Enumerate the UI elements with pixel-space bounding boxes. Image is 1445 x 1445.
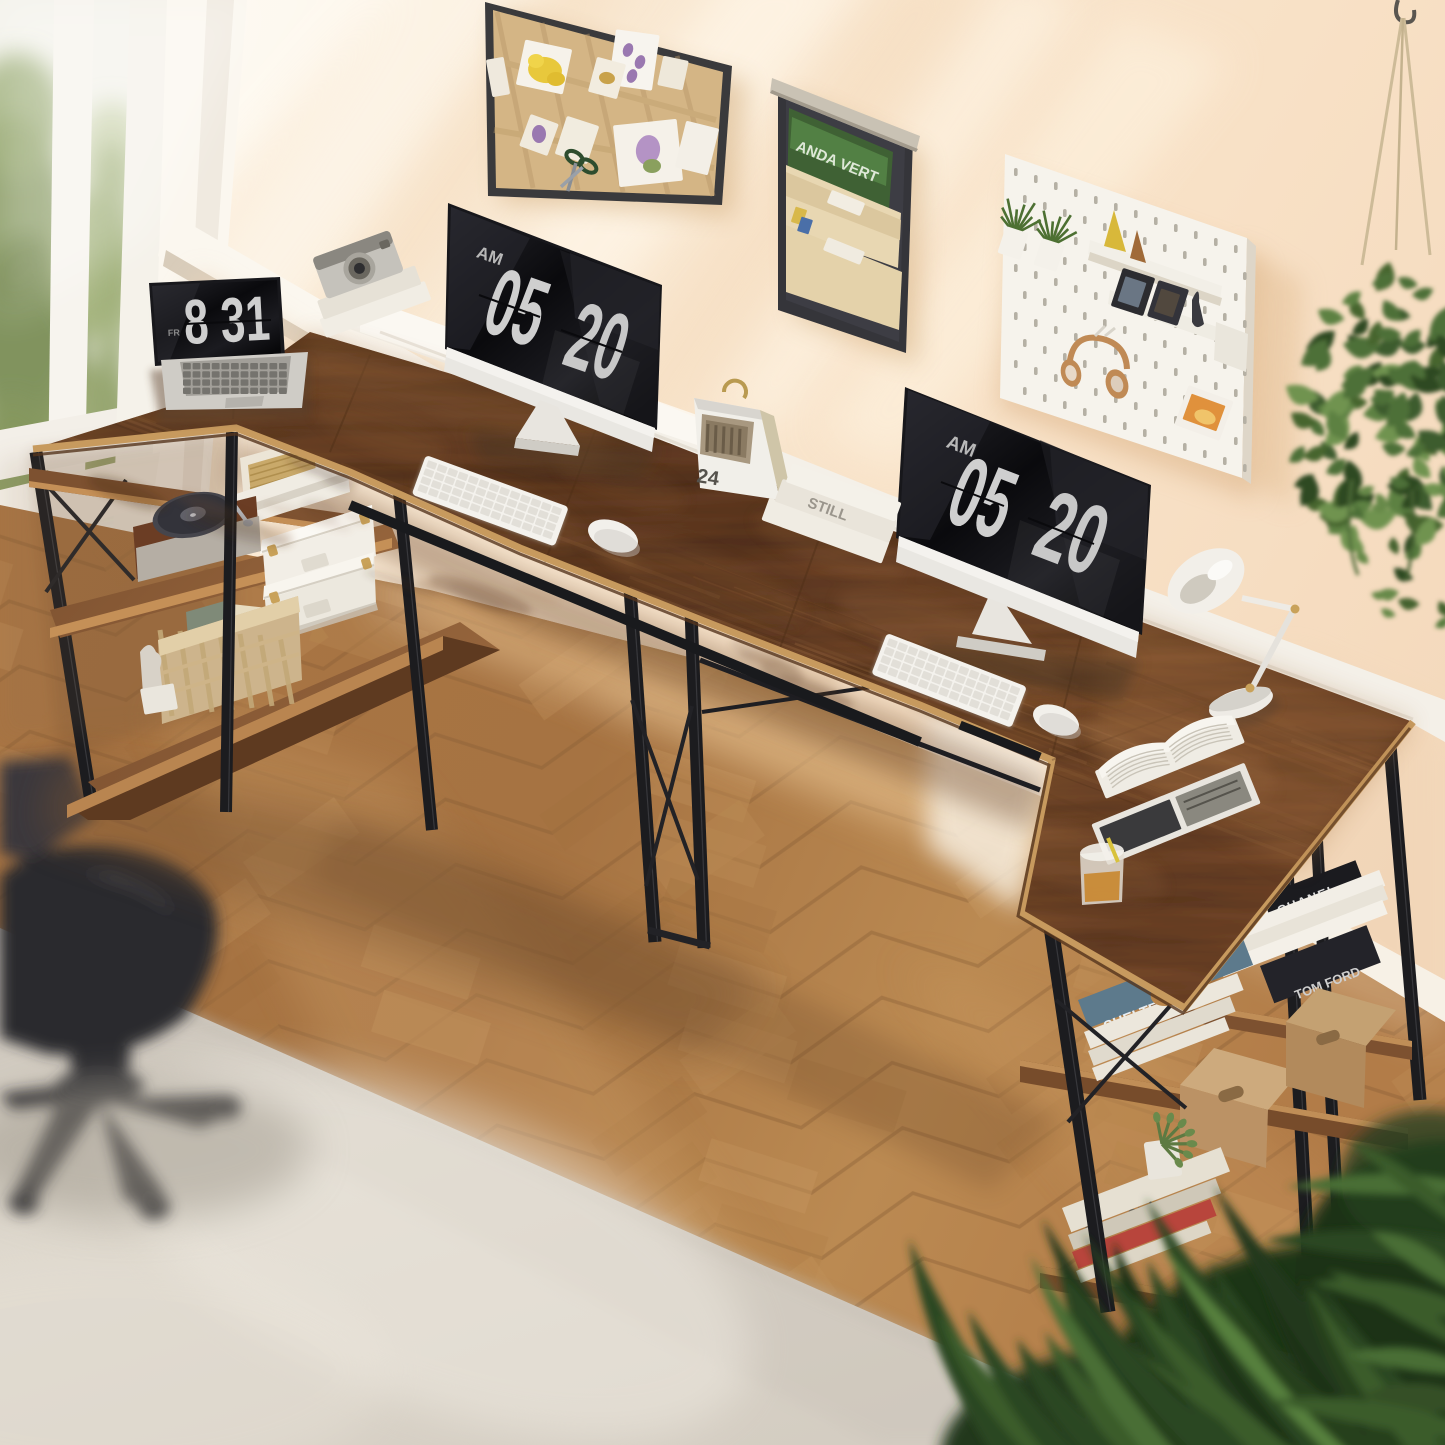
svg-text:24: 24: [695, 465, 721, 490]
svg-text:FR: FR: [168, 327, 181, 338]
